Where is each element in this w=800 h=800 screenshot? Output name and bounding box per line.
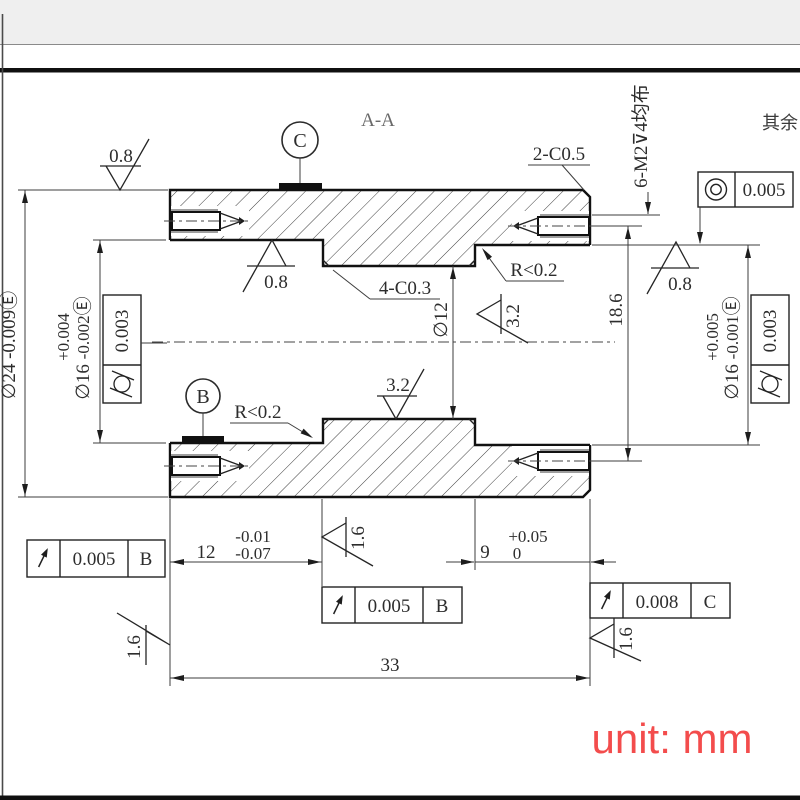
chamfer-inner-note: 4-C0.3: [333, 270, 440, 299]
circular-runout-icon: [331, 594, 346, 616]
dia16L-text: ∅16 -0.002Ⓔ: [72, 296, 94, 399]
dim-dia16-left: +0.004 ∅16 -0.002Ⓔ 0.003: [54, 240, 167, 443]
gdt-frame-concentricity: 0.005: [697, 172, 793, 244]
cylindricity-value: 0.003: [760, 310, 781, 353]
concentricity-value: 0.005: [743, 180, 786, 201]
svg-text:3.2: 3.2: [503, 304, 524, 328]
datum-c-target: [279, 183, 322, 190]
circular-runout-icon: [599, 589, 614, 611]
radius-left-text: R<0.2: [234, 402, 281, 423]
gdt-frame-cylindricity-right: 0.003: [751, 295, 789, 403]
dim-12: 12 -0.01 -0.07: [170, 527, 322, 565]
chamfer-outer-text: 2-C0.5: [533, 144, 585, 165]
len12-tol-dn: -0.07: [235, 544, 271, 563]
datum-c: C: [279, 122, 322, 190]
runout-datum: C: [704, 592, 717, 613]
set-screw-bottom-right: [508, 446, 592, 476]
radius-note-left: R<0.2: [230, 402, 313, 438]
radius-note-right: R<0.2: [482, 248, 564, 281]
border-bottom-thick: [0, 796, 800, 800]
roughness-step-center: 1.6: [322, 517, 373, 566]
top-gray-band: [0, 0, 800, 44]
circular-runout-icon: [36, 547, 51, 569]
roughness-bore-center: 3.2: [377, 369, 424, 419]
dim-33: 33: [170, 655, 590, 681]
dia16L-tol-upper: +0.004: [54, 313, 73, 361]
svg-text:1.6: 1.6: [124, 635, 145, 659]
set-screw-top-left: [164, 206, 252, 236]
unit-note: unit: mm: [591, 715, 752, 762]
runout-datum: B: [140, 549, 153, 570]
chamfer-inner-text: 4-C0.3: [379, 278, 431, 299]
roughness-top: 0.8: [100, 139, 149, 190]
gdt-frame-cylindricity-left: 0.003: [103, 295, 167, 403]
svg-text:1.6: 1.6: [616, 627, 637, 651]
roughness-face-right: 1.6: [590, 618, 641, 661]
gdt-frame-runout-left: 0.005 B: [27, 540, 165, 577]
len9-tol-dn: 0: [513, 544, 522, 563]
roughness-right: 0.8: [647, 242, 699, 295]
len9-value: 9: [480, 542, 490, 563]
dia16R-tol-upper: +0.005: [703, 313, 722, 361]
svg-text:0.8: 0.8: [109, 146, 133, 167]
datum-b: B: [182, 379, 224, 443]
drawing-page: A-A 其余 C B ∅24 -0.009Ⓔ +0.004: [0, 0, 800, 800]
cylindricity-icon: [758, 371, 782, 397]
dia24-text: ∅24 -0.009Ⓔ: [0, 291, 20, 399]
dim-dia24: ∅24 -0.009Ⓔ: [0, 190, 28, 497]
datum-b-target: [182, 436, 224, 443]
svg-text:0.8: 0.8: [668, 274, 692, 295]
roughness-bore-right: 3.2: [477, 294, 528, 343]
svg-text:1.6: 1.6: [348, 526, 369, 550]
gdt-frame-runout-right: 0.008 C: [590, 583, 730, 618]
gdt-frame-runout-center: 0.005 B: [322, 587, 462, 623]
set-screw-top-right: [508, 211, 592, 241]
runout-datum: B: [436, 596, 449, 617]
others-note: 其余: [762, 113, 798, 134]
concentricity-icon: [706, 179, 727, 200]
border-top-thick: [0, 68, 800, 73]
dim-18-6: 18.6: [606, 226, 631, 461]
engineering-drawing: A-A 其余 C B ∅24 -0.009Ⓔ +0.004: [0, 0, 800, 800]
chamfer-outer-note: 2-C0.5: [528, 144, 590, 190]
cylindricity-icon: [110, 371, 134, 397]
roughness-face-left: 1.6: [117, 613, 170, 665]
len12-value: 12: [197, 542, 216, 563]
roughness-bore-left: 0.8: [243, 240, 295, 293]
dia12-text: ∅12: [431, 302, 452, 338]
dia16R-text: ∅16 -0.001Ⓔ: [721, 296, 743, 399]
svg-text:0.8: 0.8: [264, 272, 288, 293]
len33-value: 33: [381, 655, 400, 676]
dim-dia16-right: +0.005 ∅16 -0.001Ⓔ 0.003: [703, 245, 789, 445]
datum-c-label: C: [293, 130, 306, 152]
datum-b-label: B: [196, 386, 209, 408]
svg-text:3.2: 3.2: [386, 375, 410, 396]
thread-note: 6-M2⊽4均布: [630, 84, 652, 214]
set-screw-bottom-left: [164, 451, 252, 481]
runout-value: 0.008: [636, 592, 679, 613]
thread-note-text: 6-M2⊽4均布: [630, 84, 652, 188]
h186-text: 18.6: [606, 293, 627, 326]
runout-value: 0.005: [73, 549, 116, 570]
section-label: A-A: [361, 110, 395, 131]
page-frame: [0, 0, 800, 800]
runout-value: 0.005: [368, 596, 411, 617]
cylindricity-value: 0.003: [112, 310, 133, 353]
radius-right-text: R<0.2: [510, 260, 557, 281]
